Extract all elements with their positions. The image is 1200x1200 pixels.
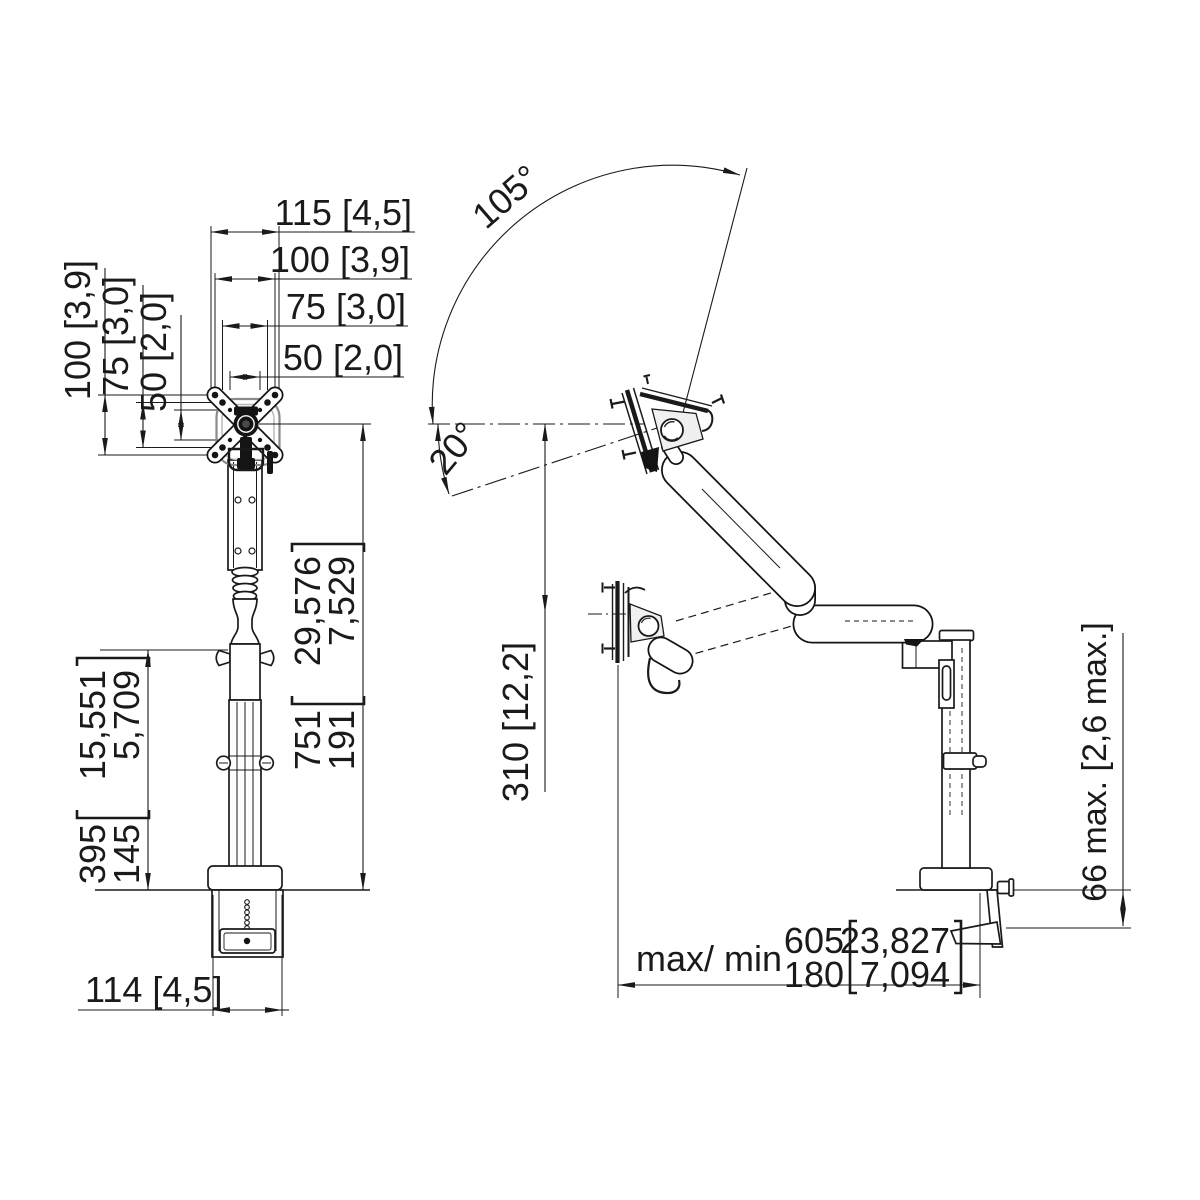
dim-vesa75-width: 75 [3,0] xyxy=(286,286,406,327)
dim-vesa50-height: 50 [2,0] xyxy=(133,292,174,412)
dim-total-height-min-in: 7,529 xyxy=(321,556,362,646)
dim-head-drop: 310 [12,2] xyxy=(495,642,536,802)
dim-clamp-width: 114 [4,5] xyxy=(85,969,222,1010)
dim-reach-min-mm: 180 xyxy=(784,954,844,995)
dim-desk-thickness: 66 max. [2,6 max.] xyxy=(1076,622,1114,902)
reach-maxmin-label: max/ min xyxy=(636,938,782,979)
background xyxy=(0,0,1200,1200)
technical-drawing: 115 [4,5] 100 [3,9] 75 [3,0] 50 [2,0] 10… xyxy=(0,0,1200,1200)
dim-vesa100-width: 100 [3,9] xyxy=(270,239,410,280)
dim-vesa100-height: 100 [3,9] xyxy=(57,260,98,400)
dim-pole-height-min-mm: 145 xyxy=(106,824,147,884)
dim-reach-min-in: 7,094 xyxy=(860,954,950,995)
dim-total-height-min-mm: 191 xyxy=(321,710,362,770)
dim-vesa50-width: 50 [2,0] xyxy=(283,337,403,378)
dim-vesa75-height: 75 [3,0] xyxy=(95,276,136,396)
dim-pole-height-min-in: 5,709 xyxy=(106,670,147,760)
drawing-page: 115 [4,5] 100 [3,9] 75 [3,0] 50 [2,0] 10… xyxy=(0,0,1200,1200)
dim-adapter-width: 115 [4,5] xyxy=(275,192,412,233)
